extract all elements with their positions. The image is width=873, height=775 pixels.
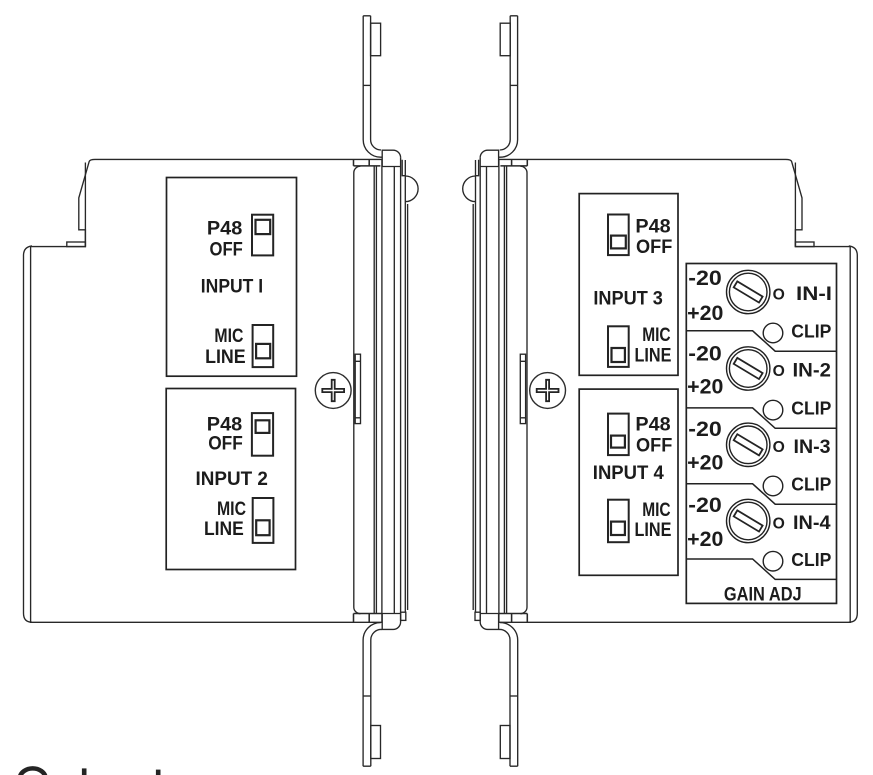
svg-text:O: O [773, 515, 785, 532]
svg-text:LINE: LINE [635, 346, 672, 367]
svg-text:-20: -20 [688, 267, 722, 290]
svg-text:-20: -20 [688, 418, 722, 441]
svg-text:+20: +20 [687, 452, 723, 475]
svg-text:INPUT 3: INPUT 3 [593, 288, 663, 309]
svg-text:O: O [773, 286, 785, 303]
svg-text:-20: -20 [688, 494, 722, 517]
svg-text:INPUT 4: INPUT 4 [593, 463, 664, 484]
svg-text:GAIN ADJ: GAIN ADJ [724, 584, 802, 605]
svg-text:MIC: MIC [214, 326, 243, 347]
svg-text:IN-I: IN-I [796, 284, 832, 305]
svg-text:OFF: OFF [636, 436, 672, 457]
svg-text:CLIP: CLIP [791, 322, 831, 342]
svg-text:P48: P48 [207, 219, 242, 240]
svg-text:O: O [773, 439, 785, 456]
svg-text:IN-2: IN-2 [793, 361, 832, 382]
svg-text:IN-3: IN-3 [794, 437, 831, 458]
svg-text:LINE: LINE [635, 520, 672, 541]
svg-text:OFF: OFF [636, 237, 672, 258]
svg-text:LINE: LINE [205, 347, 246, 368]
svg-text:CLIP: CLIP [791, 550, 831, 570]
svg-text:MIC: MIC [217, 499, 246, 520]
svg-text:+20: +20 [687, 528, 723, 551]
svg-text:INPUT 2: INPUT 2 [196, 469, 268, 490]
svg-text:IN-4: IN-4 [793, 513, 831, 534]
svg-text:P48: P48 [207, 415, 242, 436]
svg-text:MIC: MIC [642, 325, 671, 346]
svg-text:INPUT I: INPUT I [201, 277, 263, 298]
svg-text:P48: P48 [635, 415, 670, 436]
svg-text:LINE: LINE [204, 519, 244, 540]
svg-text:+20: +20 [687, 302, 723, 325]
svg-text:+20: +20 [687, 376, 723, 399]
svg-text:MIC: MIC [642, 500, 671, 521]
svg-text:P48: P48 [635, 217, 670, 238]
svg-text:CLIP: CLIP [791, 475, 831, 495]
svg-text:O: O [773, 363, 785, 380]
svg-text:OFF: OFF [210, 240, 243, 261]
svg-text:CLIP: CLIP [791, 399, 831, 419]
svg-text:OFF: OFF [208, 434, 243, 455]
svg-text:-20: -20 [688, 343, 722, 366]
